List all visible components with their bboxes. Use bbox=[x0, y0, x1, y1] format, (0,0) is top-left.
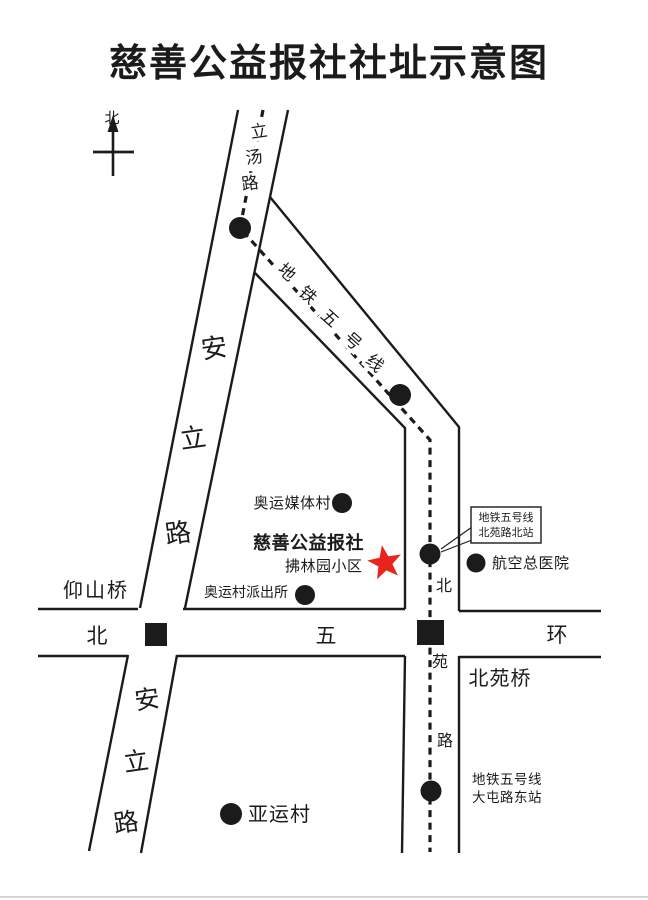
datun-east-station-label: 地铁五号线 大屯路东站 bbox=[472, 772, 542, 805]
media-village-dot bbox=[332, 493, 352, 513]
ring5-char-1: 北 bbox=[87, 625, 108, 648]
anli-lower-char-2: 立 bbox=[122, 746, 151, 777]
subway5-char-5: 线 bbox=[362, 351, 387, 376]
beiyuan-bridge-label: 北苑桥 bbox=[469, 667, 532, 690]
subway5-char-3: 五 bbox=[317, 306, 342, 331]
asian-games-village-dot bbox=[220, 803, 242, 825]
subway5-char-4: 号 bbox=[340, 329, 365, 354]
police-station-label: 奥运村派出所 bbox=[204, 584, 288, 600]
ring5-char-3: 环 bbox=[547, 624, 568, 647]
beiyuan-road-label: 北 苑 路 bbox=[432, 577, 453, 750]
beiyuan-bridge-square bbox=[417, 620, 444, 645]
map-page: 慈善公益报社社址示意图 北 立 汤 路 bbox=[0, 0, 648, 900]
yangshan-bridge-square bbox=[145, 623, 167, 646]
anli-upper-char-2: 立 bbox=[178, 421, 208, 454]
litang-char-3: 路 bbox=[240, 173, 259, 194]
subway-station-dot-beiyuan-north bbox=[420, 544, 441, 565]
beiyuan-north-station-callout: 地铁五号线 北苑路北站 bbox=[441, 507, 541, 552]
beiyuan-char-3: 路 bbox=[437, 732, 453, 750]
fulinyuan-label: 拂林园小区 bbox=[285, 558, 363, 575]
office-label: 慈善公益报社 bbox=[253, 532, 364, 553]
anli-lower-char-3: 路 bbox=[112, 807, 141, 838]
asian-games-village-label: 亚运村 bbox=[248, 803, 311, 826]
anli-road-label-lower: 安 立 路 bbox=[112, 684, 162, 838]
litang-char-1: 立 bbox=[249, 121, 268, 142]
hospital-dot bbox=[467, 554, 486, 573]
subway5-char-1: 地 bbox=[274, 260, 299, 285]
page-title: 慈善公益报社社址示意图 bbox=[109, 43, 549, 85]
road-edges bbox=[38, 110, 601, 853]
media-village-label: 奥运媒体村 bbox=[253, 495, 331, 512]
litang-road-label: 立 汤 路 bbox=[239, 120, 271, 195]
anli-upper-char-1: 安 bbox=[199, 331, 229, 364]
map-svg: 慈善公益报社社址示意图 北 立 汤 路 bbox=[0, 0, 648, 900]
subway-station-dot-litang bbox=[229, 217, 251, 239]
anli-lower-char-1: 安 bbox=[133, 684, 162, 715]
police-station-dot bbox=[295, 585, 315, 605]
yangshan-bridge-label: 仰山桥 bbox=[63, 579, 129, 602]
hospital-label: 航空总医院 bbox=[492, 554, 570, 572]
subway-line5-track bbox=[240, 110, 430, 852]
beiyuan-road-west-edge-lower bbox=[402, 656, 405, 853]
compass: 北 bbox=[93, 110, 134, 176]
beiyuan-char-2: 苑 bbox=[432, 653, 448, 671]
anli-upper-char-3: 路 bbox=[163, 516, 193, 549]
callout-line-1: 地铁五号线 bbox=[479, 510, 534, 524]
beiyuan-char-1: 北 bbox=[436, 577, 452, 595]
datun-east-line-1: 地铁五号线 bbox=[472, 772, 542, 787]
datun-east-line-2: 大屯路东站 bbox=[472, 790, 542, 805]
ring5-char-2: 五 bbox=[316, 625, 337, 648]
subway5-char-2: 铁 bbox=[295, 283, 320, 308]
subway-line5-road-label: 地 铁 五 号 线 bbox=[273, 258, 389, 377]
litang-char-2: 汤 bbox=[244, 147, 263, 168]
office-location-star bbox=[367, 545, 401, 579]
subway-station-dot-mid bbox=[389, 384, 411, 406]
callout-line-2: 北苑路北站 bbox=[479, 525, 534, 539]
subway-station-dot-datun-east bbox=[421, 781, 442, 802]
